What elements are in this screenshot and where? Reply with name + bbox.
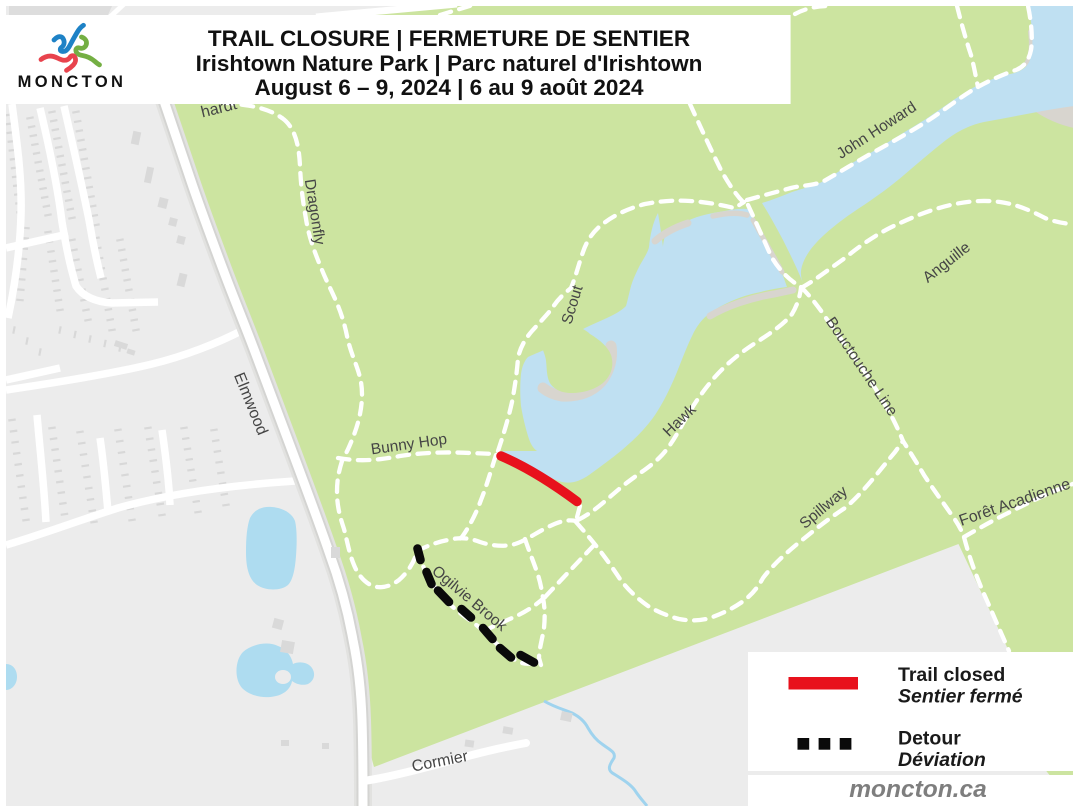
- svg-text:TRAIL CLOSURE | FERMETURE DE S: TRAIL CLOSURE | FERMETURE DE SENTIER: [208, 26, 690, 51]
- svg-text:moncton.ca: moncton.ca: [849, 776, 987, 803]
- svg-text:Detour: Detour: [898, 728, 961, 750]
- svg-text:August 6 – 9, 2024 | 6 au 9 ao: August 6 – 9, 2024 | 6 au 9 août 2024: [255, 75, 644, 100]
- svg-text:Irishtown Nature Park | Parc n: Irishtown Nature Park | Parc naturel d'I…: [196, 51, 703, 76]
- svg-text:Trail closed: Trail closed: [898, 664, 1005, 686]
- svg-text:Déviation: Déviation: [898, 749, 986, 771]
- svg-text:MONCTON: MONCTON: [18, 73, 127, 91]
- svg-text:Sentier fermé: Sentier fermé: [898, 686, 1023, 708]
